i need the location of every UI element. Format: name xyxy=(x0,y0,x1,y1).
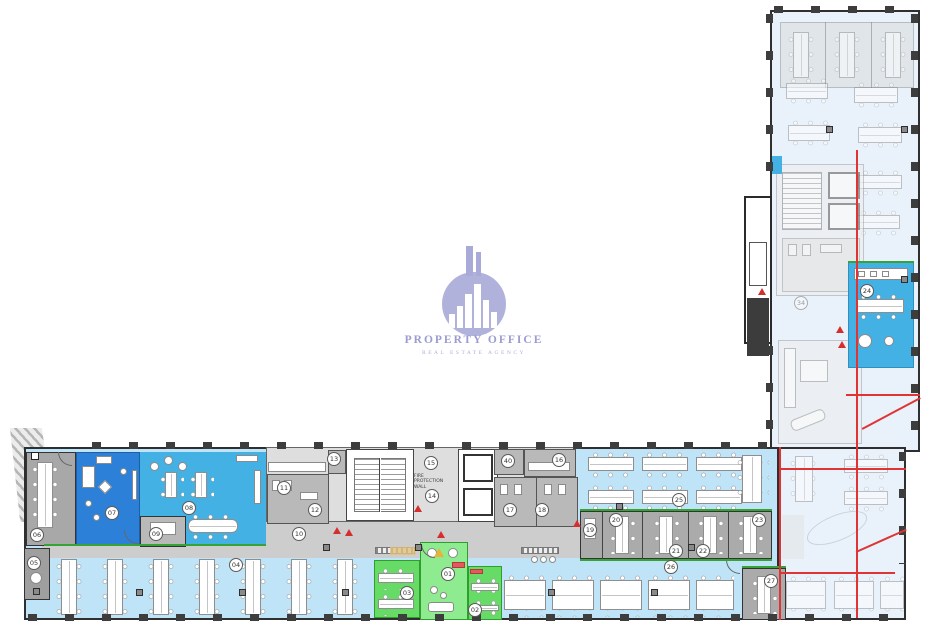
logo-bar xyxy=(449,314,455,328)
desk xyxy=(858,127,902,143)
desk xyxy=(786,581,826,609)
appliance xyxy=(858,271,865,277)
room-label-15: 15 xyxy=(424,456,438,470)
table-top xyxy=(793,32,809,78)
cabinet xyxy=(82,466,95,488)
column xyxy=(901,276,908,283)
red-triangle-marker xyxy=(573,520,581,527)
facade-mullions xyxy=(766,346,773,446)
wc-fixture xyxy=(300,492,318,500)
room-label-06: 06 xyxy=(30,528,44,542)
stool xyxy=(85,500,92,507)
desk xyxy=(588,490,634,504)
logo-building-icon xyxy=(442,272,506,336)
desk xyxy=(107,559,123,615)
red-triangle-marker xyxy=(414,505,422,512)
round-table xyxy=(858,334,872,348)
room-label-27: 27 xyxy=(764,574,778,588)
stool xyxy=(531,556,538,563)
table-top xyxy=(165,472,177,498)
wc-fixture xyxy=(788,244,797,256)
desk-cluster xyxy=(192,559,222,615)
room-label-19: 19 xyxy=(583,523,597,537)
facade-mullions xyxy=(766,14,773,194)
room-label-26: 26 xyxy=(664,560,678,574)
room-label-22: 22 xyxy=(696,544,710,558)
column xyxy=(688,544,695,551)
room-label-40: 40 xyxy=(501,454,515,468)
wash-counter xyxy=(268,462,326,472)
room-label-18: 18 xyxy=(535,503,549,517)
corridor-equipment xyxy=(521,547,559,554)
desk-cluster xyxy=(100,559,130,615)
equipment xyxy=(30,572,42,584)
column xyxy=(651,589,658,596)
desk-cluster xyxy=(786,574,826,616)
table-top xyxy=(188,519,238,533)
logo-title: PROPERTY OFFICE xyxy=(374,334,574,346)
room-label-34: 34 xyxy=(794,296,808,310)
wc-fixture xyxy=(500,484,508,495)
red-triangle-marker xyxy=(758,288,766,295)
desk-cluster xyxy=(696,573,734,617)
stool xyxy=(549,556,556,563)
column xyxy=(901,126,908,133)
room-label-01: 01 xyxy=(441,567,455,581)
stool xyxy=(93,514,100,521)
desk xyxy=(61,559,77,615)
room-label-25: 25 xyxy=(672,493,686,507)
red-triangle-marker xyxy=(838,341,846,348)
desk-cluster xyxy=(880,574,904,616)
desk-cluster xyxy=(330,559,360,615)
cafe-table-group xyxy=(158,472,184,498)
desk-cluster xyxy=(786,76,828,106)
room-label-14: 14 xyxy=(425,489,439,503)
warning-triangle xyxy=(434,548,444,557)
glass-partition xyxy=(580,559,772,561)
desk xyxy=(786,83,828,99)
room-label-12: 12 xyxy=(308,503,322,517)
room-label-09: 09 xyxy=(149,527,163,541)
room-label-16: 16 xyxy=(552,453,566,467)
desk xyxy=(742,455,762,503)
elevator-cab xyxy=(463,454,493,482)
desk xyxy=(844,459,888,473)
column xyxy=(239,589,246,596)
entry-mat xyxy=(390,547,416,555)
table-top xyxy=(471,583,499,591)
column xyxy=(342,589,349,596)
table-top xyxy=(378,573,414,583)
kitchen-counter xyxy=(784,348,796,408)
conference-table xyxy=(30,462,60,528)
wc-divider xyxy=(536,477,537,527)
fire-protection-wall-label: FIRE PROTECTION WALL xyxy=(414,474,440,490)
glass-partition xyxy=(848,261,914,263)
desk-cluster xyxy=(588,450,634,478)
appliance xyxy=(870,271,877,277)
bench xyxy=(254,470,261,504)
kitchen-counter xyxy=(800,360,828,382)
stool xyxy=(540,556,547,563)
room-label-04: 04 xyxy=(229,558,243,572)
desk-cluster xyxy=(504,573,546,617)
wall-box xyxy=(31,452,39,460)
round-table xyxy=(884,336,894,346)
cafe-table xyxy=(164,456,173,465)
desk-cluster xyxy=(788,118,830,148)
desk xyxy=(600,580,642,610)
room-label-02: 02 xyxy=(468,603,482,617)
cafe-table xyxy=(178,462,187,471)
desk-cluster xyxy=(284,559,314,615)
desk-cluster xyxy=(844,484,888,512)
desk-cluster xyxy=(844,452,888,480)
cafe-table-group xyxy=(188,472,214,498)
facade-mullions xyxy=(92,442,772,449)
facade-mullions xyxy=(911,14,918,450)
glass-partition xyxy=(580,509,772,511)
table-top xyxy=(839,32,855,78)
desk xyxy=(153,559,169,615)
desk-cluster xyxy=(588,483,634,511)
whiteboard xyxy=(132,470,137,500)
red-line xyxy=(779,572,895,574)
column xyxy=(323,544,330,551)
annex-lift xyxy=(749,242,767,286)
room-label-08: 08 xyxy=(182,501,196,515)
desk-cluster xyxy=(834,574,874,616)
desk xyxy=(291,559,307,615)
conference-table xyxy=(786,32,816,78)
room-label-11: 11 xyxy=(277,481,291,495)
red-triangle-marker xyxy=(333,527,341,534)
meeting-table xyxy=(471,576,499,598)
wc-fixture xyxy=(558,484,566,495)
room-label-20: 20 xyxy=(609,513,623,527)
logo-bar xyxy=(474,284,481,328)
facade-mullions xyxy=(28,614,906,621)
desk xyxy=(642,457,688,471)
conference-table xyxy=(878,32,908,78)
desk xyxy=(504,580,546,610)
stool xyxy=(430,586,438,594)
desk-cluster xyxy=(858,120,902,150)
round-table xyxy=(448,548,458,558)
wc-fixture xyxy=(544,484,552,495)
facade-mullions xyxy=(774,6,920,13)
wc-fixture xyxy=(514,484,522,495)
floor-plan-canvas: FIRE PROTECTION WALL xyxy=(0,0,944,628)
wc-fixture xyxy=(802,244,811,256)
room-label-23: 23 xyxy=(752,513,766,527)
logo-bar xyxy=(483,300,489,328)
shelf xyxy=(236,455,258,462)
desk-cluster xyxy=(642,450,688,478)
gray-zone xyxy=(782,515,804,559)
sofa xyxy=(428,602,454,612)
red-bench xyxy=(470,569,483,574)
logo-bar xyxy=(457,306,463,328)
elevator-cab xyxy=(463,488,493,516)
desk xyxy=(588,457,634,471)
column xyxy=(548,589,555,596)
glass-partition xyxy=(44,544,266,546)
desk xyxy=(788,125,830,141)
desk-cluster xyxy=(788,456,820,502)
desk xyxy=(854,87,898,103)
blue-sliver xyxy=(772,156,782,174)
logo-subtitle: REAL ESTATE AGENCY xyxy=(394,350,554,356)
red-triangle-marker xyxy=(345,529,353,536)
partition-wall xyxy=(602,511,603,559)
logo-bar xyxy=(491,312,497,328)
column xyxy=(616,503,623,510)
partition-wall xyxy=(688,511,689,559)
red-line xyxy=(846,394,920,396)
desk-cluster xyxy=(600,573,642,617)
room-label-07: 07 xyxy=(105,506,119,520)
red-line xyxy=(856,150,858,618)
desk xyxy=(337,559,353,615)
table-top xyxy=(378,599,414,609)
stairwell xyxy=(782,172,822,230)
logo-bar xyxy=(465,294,472,328)
desk-cluster xyxy=(54,559,84,615)
desk xyxy=(844,491,888,505)
desk-cluster xyxy=(146,559,176,615)
table-top xyxy=(37,462,53,528)
red-triangle-marker xyxy=(437,531,445,538)
red-bench xyxy=(452,562,465,568)
desk xyxy=(880,581,904,609)
room-label-03: 03 xyxy=(400,586,414,600)
conference-table xyxy=(832,32,862,78)
desk-cluster xyxy=(854,80,898,110)
red-triangle-marker xyxy=(836,326,844,333)
desk-cluster xyxy=(552,573,594,617)
desk xyxy=(199,559,215,615)
cabinet xyxy=(96,456,112,464)
desk-cluster xyxy=(735,455,769,503)
desk xyxy=(834,581,874,609)
appliance xyxy=(882,271,889,277)
room-label-10: 10 xyxy=(292,527,306,541)
red-boundary-line xyxy=(779,447,781,620)
partition-wall xyxy=(871,22,872,88)
column xyxy=(33,588,40,595)
desk xyxy=(696,580,734,610)
partition-wall xyxy=(728,511,729,559)
cafe-table xyxy=(150,462,159,471)
column xyxy=(415,544,422,551)
wc-fixture xyxy=(820,244,842,253)
stool xyxy=(440,592,447,599)
stool xyxy=(120,468,127,475)
partition-wall xyxy=(642,511,643,559)
desk xyxy=(245,559,261,615)
column xyxy=(136,589,143,596)
room-label-21: 21 xyxy=(669,544,683,558)
room-label-17: 17 xyxy=(503,503,517,517)
desk-cluster xyxy=(858,168,902,196)
room-label-05: 05 xyxy=(27,556,41,570)
table-top xyxy=(885,32,901,78)
long-table xyxy=(188,512,238,540)
desk xyxy=(795,456,813,502)
desk xyxy=(858,175,902,189)
table-top xyxy=(195,472,207,498)
column xyxy=(826,126,833,133)
stair-rail xyxy=(379,458,381,512)
red-line xyxy=(779,468,906,470)
table-top xyxy=(856,299,904,313)
desk xyxy=(552,580,594,610)
room-label-13: 13 xyxy=(327,452,341,466)
room-label-24: 24 xyxy=(860,284,874,298)
